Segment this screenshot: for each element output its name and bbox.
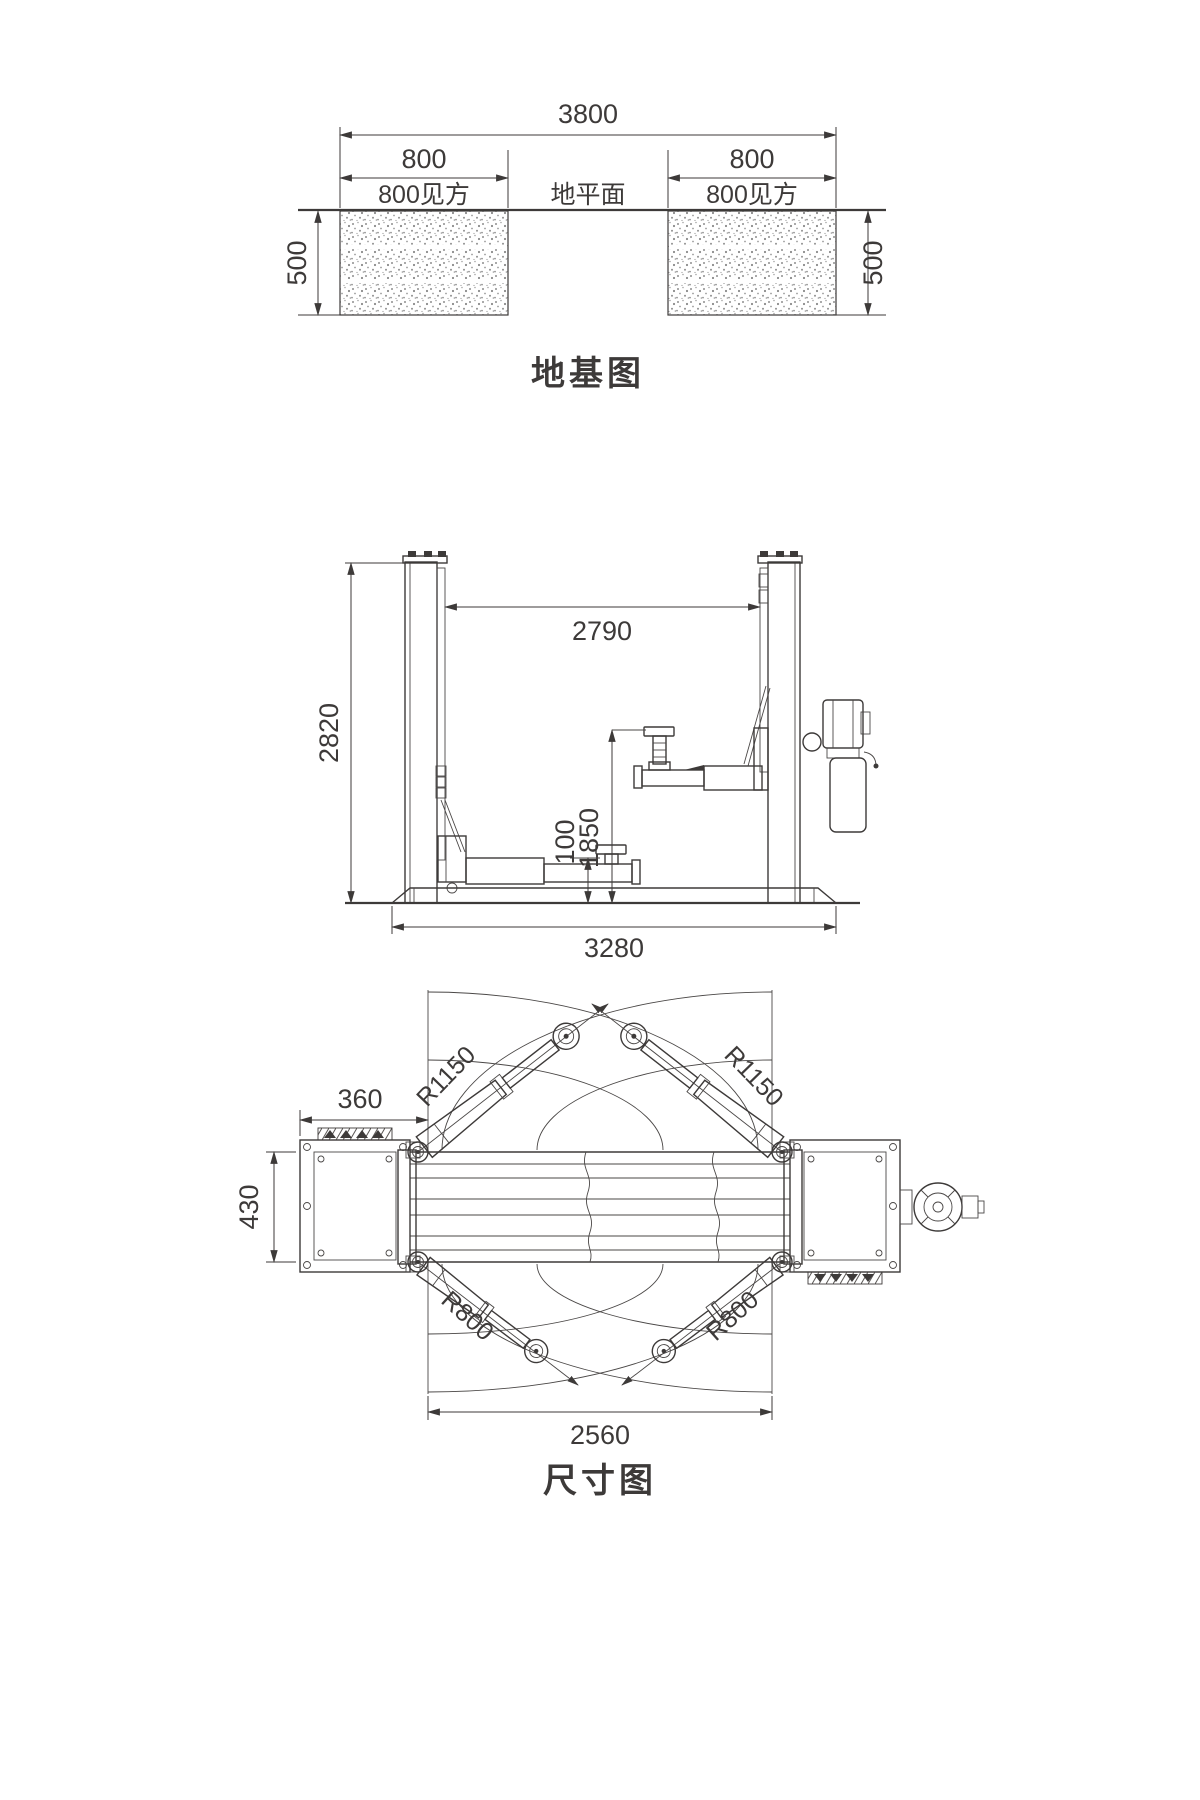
column-section [784, 1150, 802, 1264]
left-pad-width-label: 800 [401, 144, 446, 174]
column-section [398, 1150, 416, 1264]
right-pad-square-label: 800见方 [706, 181, 798, 209]
break-line [712, 1152, 719, 1262]
lowered-swing-arm [438, 836, 640, 893]
overall-height-label: 2820 [314, 703, 344, 763]
elevation-diagram: 2820 2790 1850 100 3280 [314, 551, 879, 963]
plan-diagram: R1150 R1150 R800 R800 [234, 990, 984, 1500]
plan-title: 尺寸图 [543, 1462, 657, 1500]
right-footing-block [668, 211, 836, 315]
motor-box [823, 700, 863, 748]
long-arm-radius-left-label: R1150 [411, 1041, 481, 1112]
right-pad-width-label: 800 [729, 144, 774, 174]
technical-drawing-page: 3800 800 800 800见方 地平面 800见方 500 500 地基图 [0, 0, 1200, 1800]
arm-outer-tube [466, 858, 544, 884]
inner-clearance-label: 2560 [570, 1420, 630, 1450]
left-depth-label: 500 [282, 240, 312, 285]
oil-tank [830, 758, 866, 832]
raised-swing-arm [634, 727, 768, 790]
overall-width-label: 3800 [558, 99, 618, 129]
power-unit [823, 700, 879, 832]
left-pad-square-label: 800见方 [378, 181, 470, 209]
foundation-diagram: 3800 800 800 800见方 地平面 800见方 500 500 地基图 [282, 99, 888, 393]
base-frame [345, 888, 860, 903]
arm-inner-tube [642, 770, 704, 786]
base-width-label: 3280 [584, 933, 644, 963]
post-hole [803, 733, 821, 751]
column-width-label: 360 [337, 1084, 382, 1114]
left-footing-block [340, 211, 508, 315]
ground-plane-label: 地平面 [550, 181, 625, 209]
left-base-plate [300, 1128, 428, 1272]
arm-outer-tube [704, 766, 762, 790]
pad-height-label: 100 [550, 819, 580, 864]
two-post-lift-drawing: 3800 800 800 800见方 地平面 800见方 500 500 地基图 [0, 0, 1200, 1800]
right-carriage-rail [760, 568, 768, 772]
right-base-plate [772, 1140, 984, 1284]
long-arm-radius-right-label: R1150 [719, 1041, 789, 1112]
left-post [403, 551, 465, 903]
right-post [744, 551, 821, 903]
lift-pad [644, 727, 674, 736]
left-carriage-rail [437, 568, 445, 860]
motor-coupling [827, 748, 859, 758]
floor-rails [410, 1152, 790, 1262]
column-depth-label: 430 [234, 1184, 264, 1229]
right-depth-label: 500 [858, 240, 888, 285]
power-unit-plan [900, 1183, 984, 1231]
foundation-title: 地基图 [531, 355, 645, 393]
clear-width-label: 2790 [572, 616, 632, 646]
break-line [584, 1152, 591, 1262]
